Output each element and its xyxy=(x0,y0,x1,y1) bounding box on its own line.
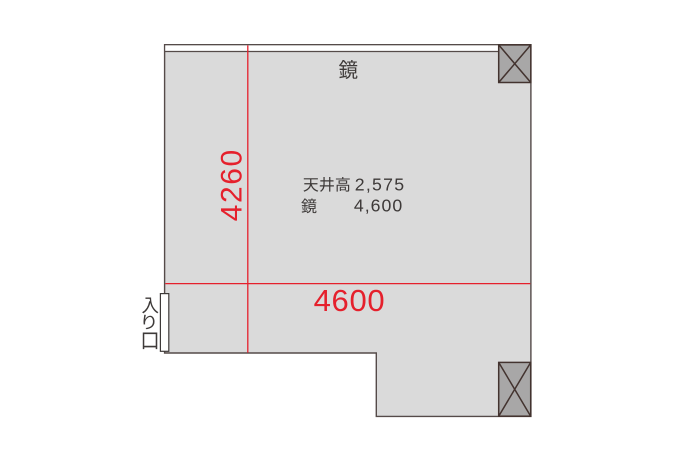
svg-text:4260: 4260 xyxy=(215,148,248,221)
svg-text:4,600: 4,600 xyxy=(354,195,403,215)
svg-text:2,575: 2,575 xyxy=(355,174,406,194)
svg-text:4600: 4600 xyxy=(314,283,386,318)
